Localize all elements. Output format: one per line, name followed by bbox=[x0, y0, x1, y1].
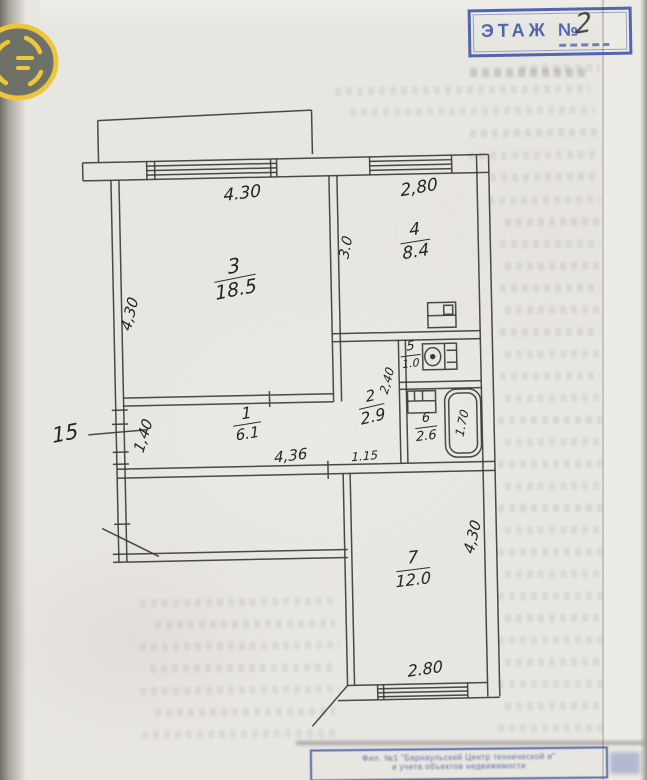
scanned-floor-plan-page: { "floor_stamp": { "label": "ЭТАЖ №", "v… bbox=[0, 0, 647, 780]
scanner-watermark-logo bbox=[0, 22, 64, 102]
registry-stamp: Фил. №1 "Барнаульский Центр технической … bbox=[310, 746, 608, 780]
sink-icon bbox=[422, 343, 457, 370]
wall-ticks bbox=[112, 410, 130, 524]
window-room7 bbox=[378, 683, 468, 700]
room-label-6: 6 2.6 bbox=[410, 410, 442, 445]
floor-stamp-value: 2 bbox=[574, 7, 592, 41]
room-label-4: 4 8.4 bbox=[395, 219, 435, 264]
dim-hall-segment: 1.15 bbox=[351, 448, 378, 464]
room-label-7: 7 12.0 bbox=[391, 547, 435, 591]
apartment-number: 15 bbox=[51, 419, 79, 448]
window-room3 bbox=[147, 159, 277, 180]
floor-stamp-label: ЭТАЖ № bbox=[481, 19, 582, 42]
stamp-smudge bbox=[470, 68, 588, 77]
stamp-ink-blob bbox=[610, 752, 640, 774]
balcony bbox=[98, 110, 313, 162]
toilet-icon bbox=[407, 391, 435, 414]
floor-plan: 4.30 2,80 3.0 4,30 1,40 15 4,36 1.15 2,4… bbox=[0, 0, 647, 780]
room-label-1: 1 6.1 bbox=[227, 402, 267, 444]
entrance-door-swing bbox=[102, 527, 159, 557]
room7-door-swing bbox=[312, 685, 349, 726]
registry-stamp-line2: и учета объектов недвижимости bbox=[312, 760, 606, 772]
bottom-edge-shadow bbox=[296, 741, 644, 745]
vent-shaft-icon bbox=[428, 302, 457, 328]
floor-number-stamp: ЭТАЖ № 2 bbox=[468, 7, 633, 58]
window-room4 bbox=[370, 155, 452, 175]
room-label-3: 3 18.5 bbox=[209, 251, 260, 304]
room-label-5: 5 1.0 bbox=[396, 338, 424, 371]
floor-plan-drawing bbox=[0, 0, 647, 780]
